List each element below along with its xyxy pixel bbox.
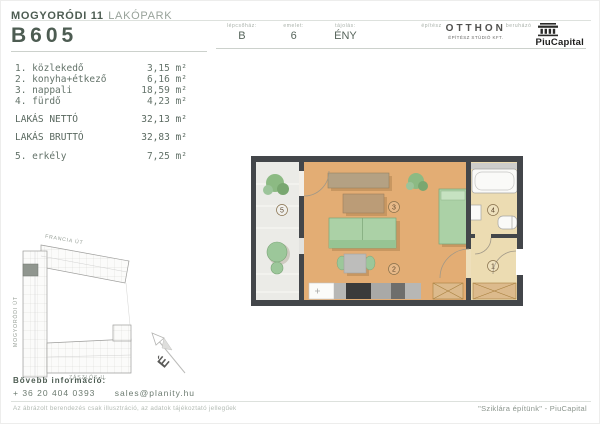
email-address: sales@planity.hu — [115, 388, 195, 398]
project-subtitle: LAKÓPARK — [108, 10, 172, 22]
toilet — [498, 216, 517, 229]
compass-arrowhead — [152, 333, 164, 345]
room-row: 2. konyha+étkező6,16 m² — [15, 74, 187, 85]
bed — [439, 189, 467, 244]
room-badge-balcony: 5 — [280, 208, 284, 215]
street-label-top: FRANCIA ÚT — [45, 233, 84, 247]
wardrobe-hatched — [433, 283, 516, 299]
phone-number: + 36 20 404 0393 — [13, 388, 95, 398]
project-title: MOGYORÓDI 11 — [11, 10, 104, 22]
balcony-area-row: 5. erkély7,25 m² — [15, 151, 187, 162]
contact-line: + 36 20 404 0393 sales@planity.hu — [13, 388, 195, 398]
room-badge-kitchen: 2 — [392, 267, 396, 274]
balcony-window — [299, 238, 304, 254]
meta-staircase: lépcsőház: B — [216, 23, 268, 42]
developer-name: PiuCapital — [536, 37, 584, 48]
washbasin — [470, 205, 481, 220]
site-plan: FRANCIA ÚT MOGYORÓDI ÚT ZÁSZLÓS U. — [9, 231, 144, 381]
street-label-left: MOGYORÓDI ÚT — [12, 296, 19, 347]
meta-floor: emelet: 6 — [268, 23, 320, 42]
hall-door-opening — [466, 249, 471, 278]
room-badge-living: 3 — [392, 205, 396, 212]
floorplan-sheet: MOGYORÓDI 11 LAKÓPARK B605 lépcsőház: B … — [0, 0, 600, 424]
gross-area-row: LAKÁS BRUTTÓ32,83 m² — [15, 132, 187, 143]
project-title-row: MOGYORÓDI 11 LAKÓPARK — [11, 6, 591, 21]
unit-meta-strip: lépcsőház: B emelet: 6 tájolás: ÉNY épít… — [216, 23, 586, 49]
room-row: 1. közlekedő3,15 m² — [15, 63, 187, 74]
architect-name: OTTHON — [446, 23, 506, 34]
architect-block: építész OTTHON ÉPÍTÉSZ STÚDIÓ KFT. — [421, 23, 506, 40]
balcony-door-opening — [299, 171, 304, 196]
building-outline — [23, 245, 131, 377]
info-label: Bővebb információ: — [13, 376, 106, 385]
compass: É — [139, 323, 194, 381]
room-list: 1. közlekedő3,15 m² 2. konyha+étkező6,16… — [15, 63, 187, 162]
sideboard — [328, 173, 389, 188]
developer-slogan: "Sziklára építünk" - PiuCapital — [478, 404, 587, 413]
architect-subname: ÉPÍTÉSZ STÚDIÓ KFT. — [446, 35, 506, 40]
unit-id: B605 — [11, 24, 207, 52]
room-row: 4. fürdő4,23 m² — [15, 96, 187, 107]
developer-block: beruházó PiuCapital — [506, 23, 584, 48]
architect-label: építész — [421, 23, 441, 40]
sofa — [329, 218, 396, 248]
room-row: 3. nappali18,59 m² — [15, 85, 187, 96]
meta-orientation: tájolás: ÉNY — [320, 23, 372, 42]
bathroom-window-sill — [471, 163, 518, 169]
developer-label: beruházó — [506, 23, 532, 48]
net-area-row: LAKÁS NETTÓ32,13 m² — [15, 114, 187, 125]
bathtub — [472, 169, 517, 193]
room-badge-hall: 1 — [491, 264, 495, 271]
dining-set — [337, 254, 375, 273]
entry-door-opening — [516, 249, 523, 275]
room-badge-bath: 4 — [491, 208, 495, 215]
highlighted-unit — [23, 264, 38, 276]
disclaimer-text: Az ábrázolt berendezés csak illusztráció… — [13, 405, 237, 412]
tv-table — [343, 194, 384, 213]
piucapital-logo-icon — [536, 23, 560, 37]
floor-plan: 5 3 2 4 1 — [251, 156, 523, 306]
compass-north-label: É — [154, 353, 172, 370]
footer-divider — [11, 401, 591, 402]
kitchen-counter — [309, 283, 421, 299]
